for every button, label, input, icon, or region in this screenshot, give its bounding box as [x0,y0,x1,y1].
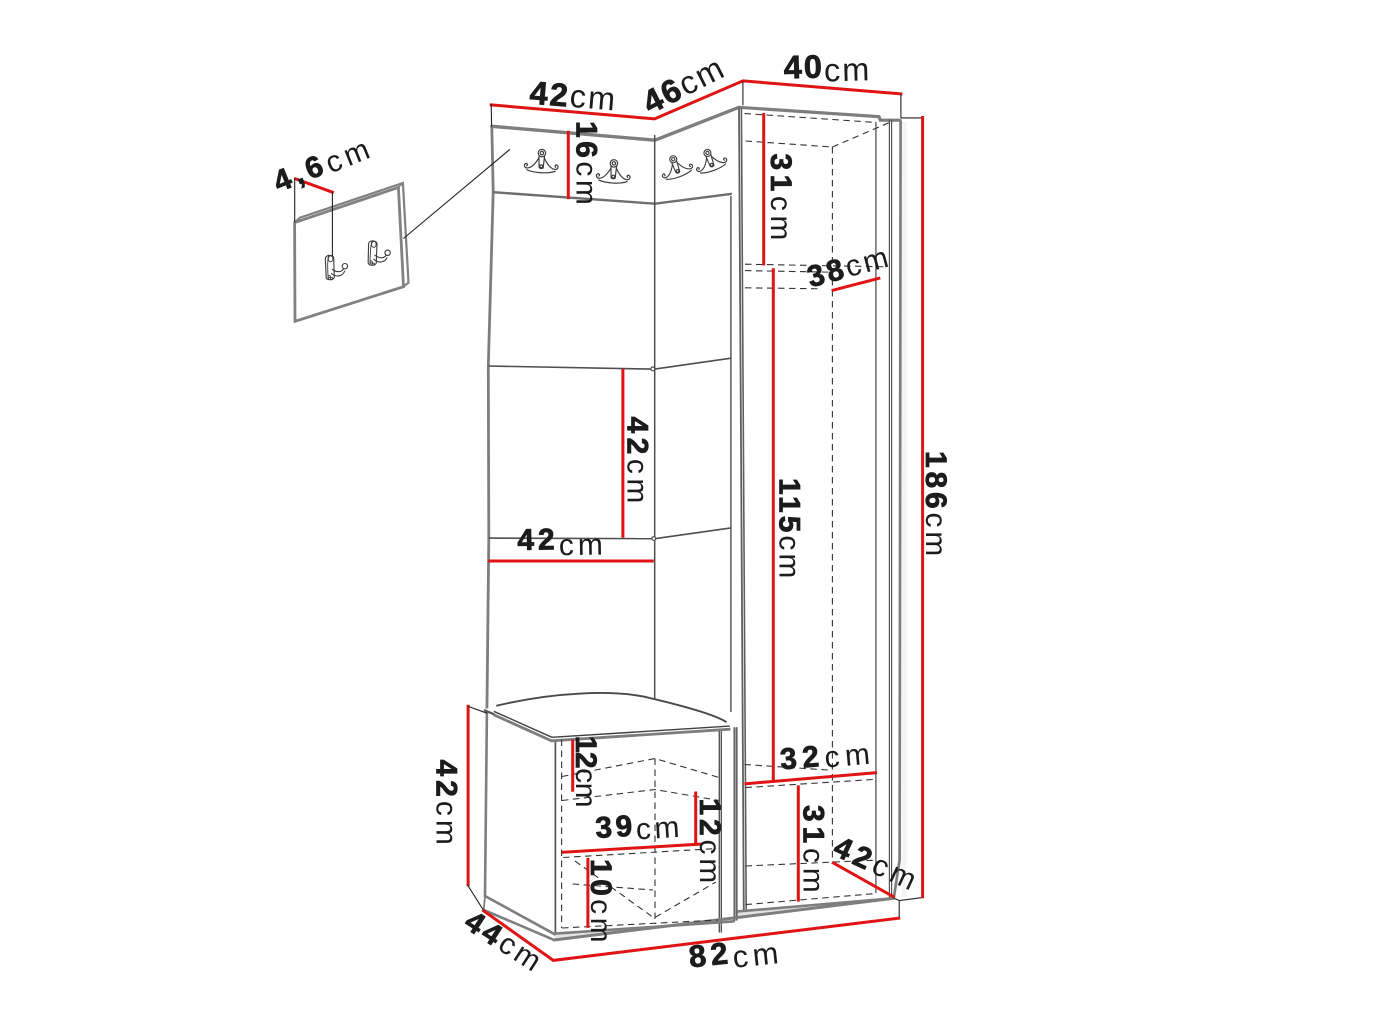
svg-text:42cm: 42cm [429,760,462,849]
svg-text:12cm: 12cm [569,736,602,807]
svg-text:186cm: 186cm [919,451,952,560]
svg-text:42cm: 42cm [620,417,653,508]
svg-text:10cm: 10cm [584,859,617,946]
svg-text:31cm: 31cm [797,805,830,898]
svg-text:12cm: 12cm [693,799,726,888]
svg-text:42cm: 42cm [528,75,618,118]
svg-text:40cm: 40cm [783,47,872,89]
svg-text:31cm: 31cm [764,154,797,245]
svg-text:16cm: 16cm [570,121,603,208]
svg-text:115cm: 115cm [773,478,806,581]
svg-text:39cm: 39cm [594,807,683,849]
